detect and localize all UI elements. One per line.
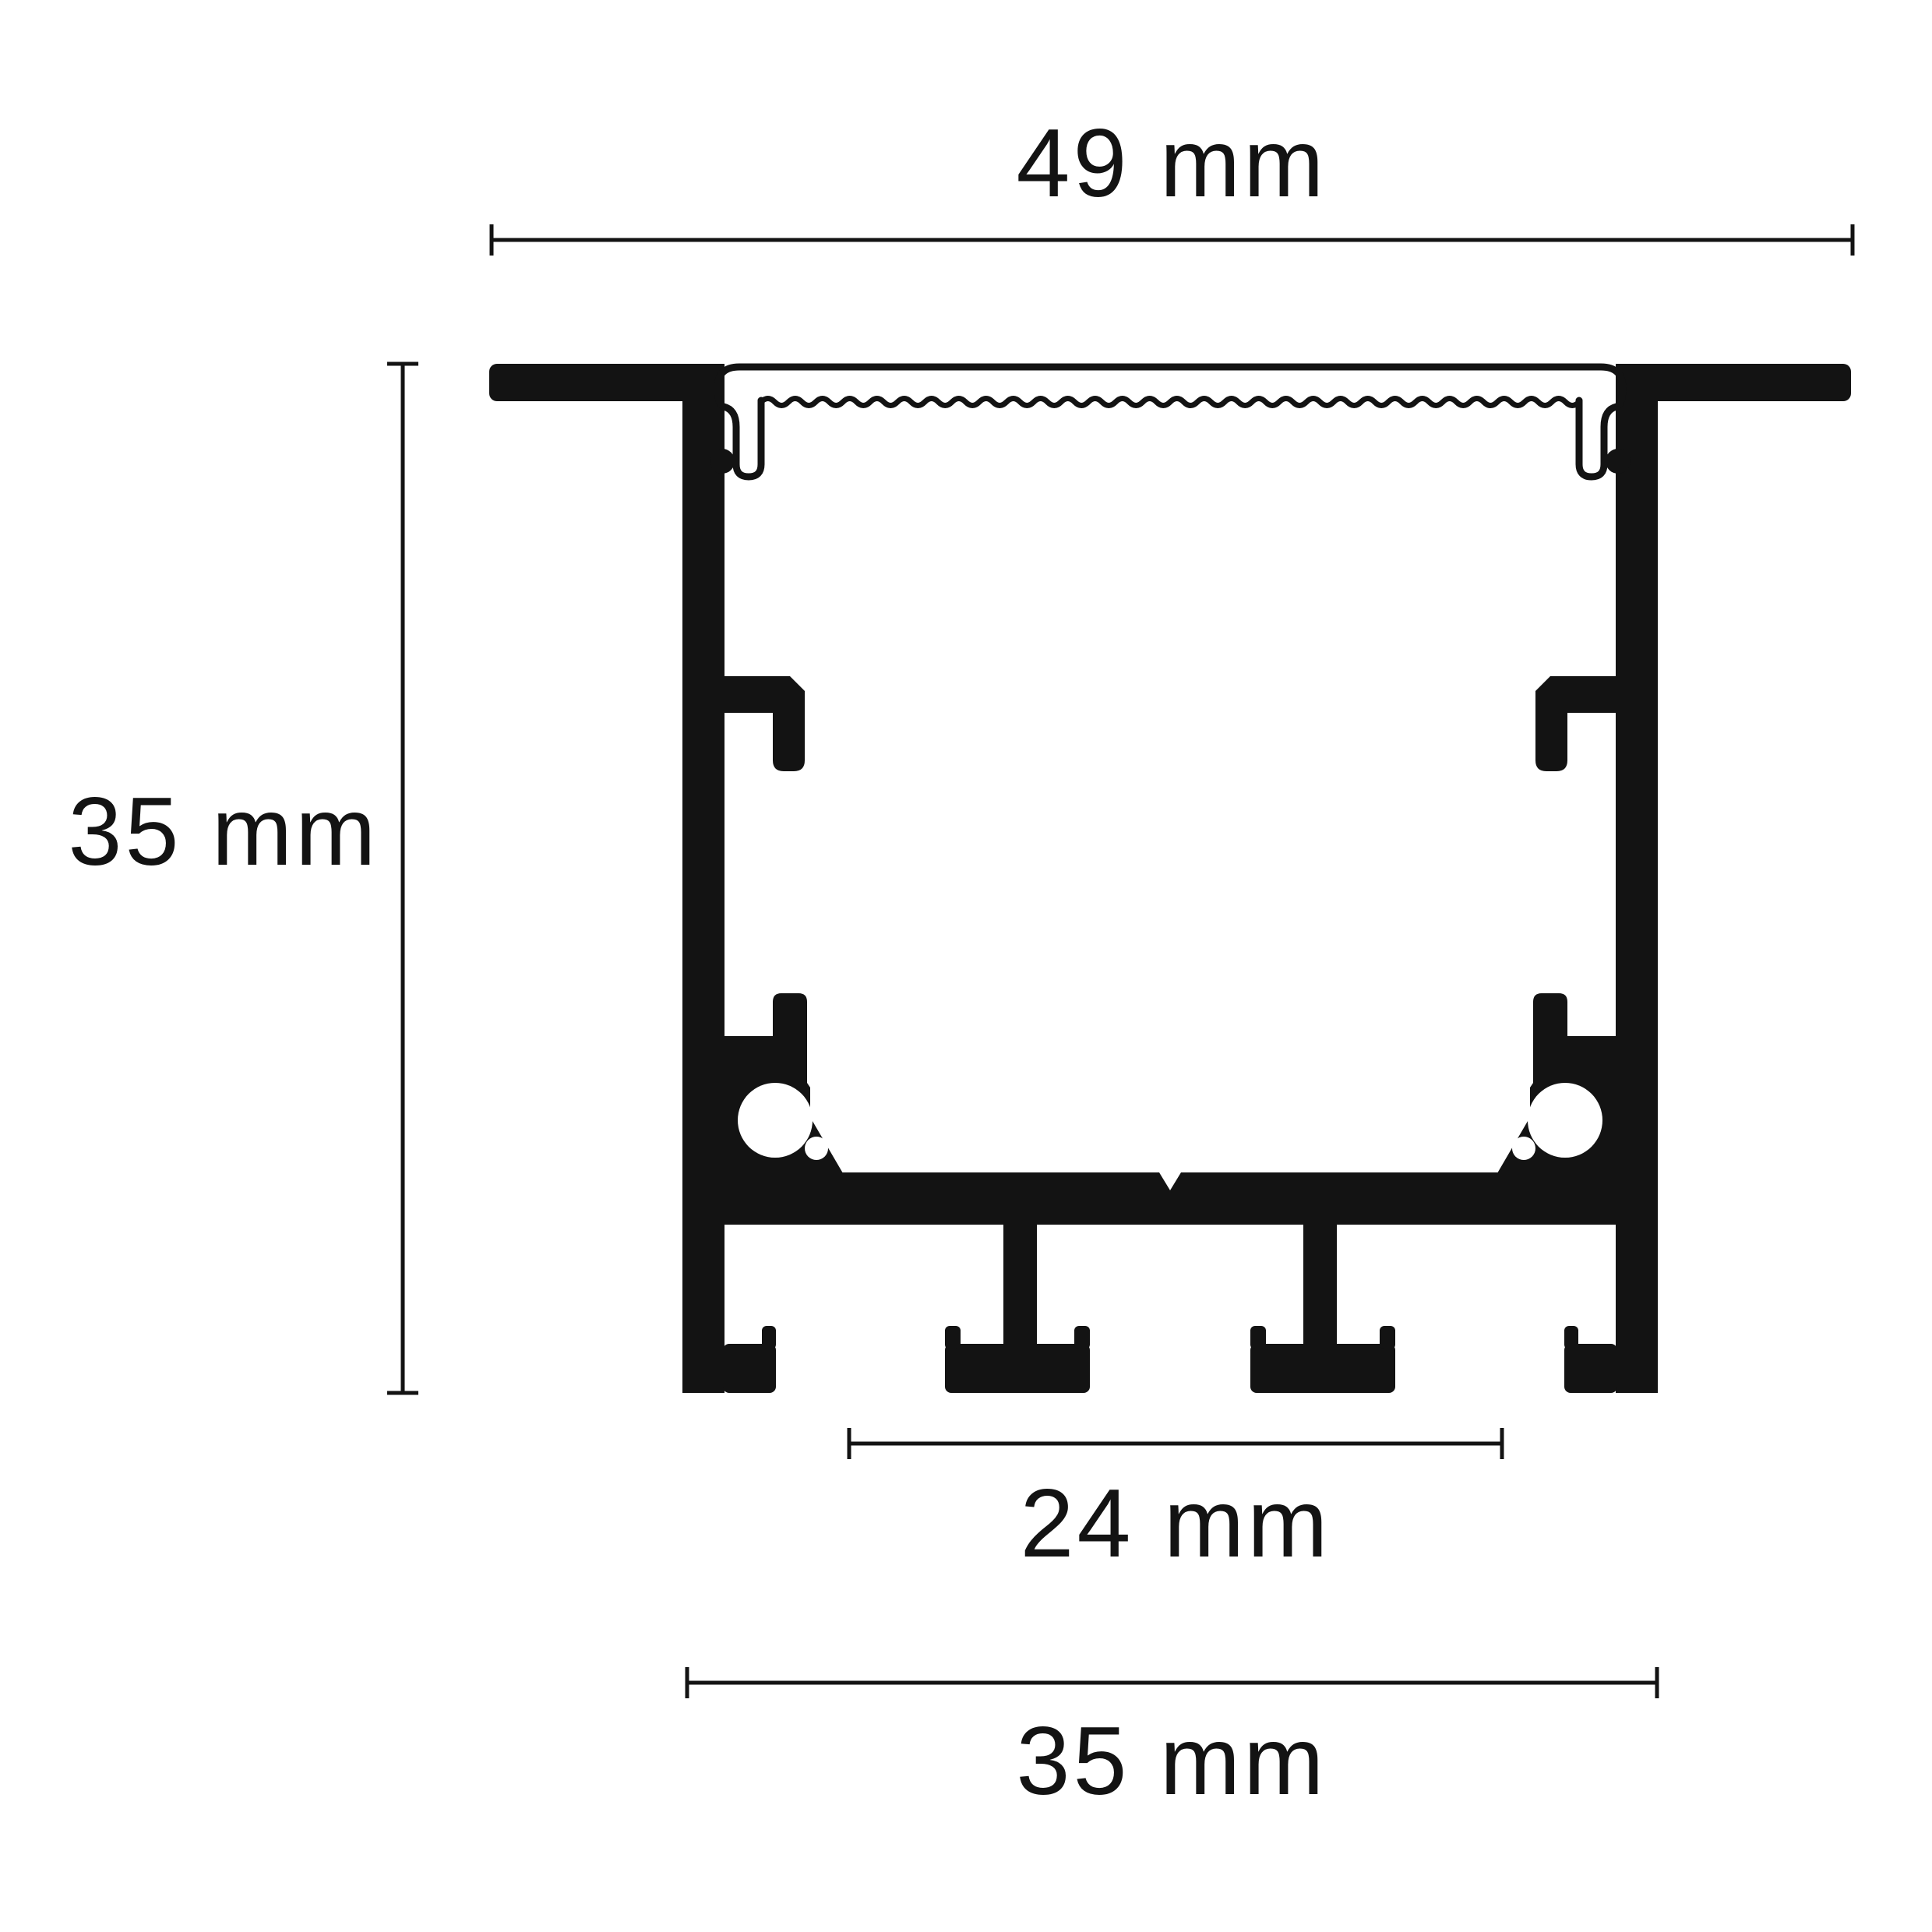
diffuser-texture-wave [761,399,1579,406]
upper-hook-right [1535,676,1616,771]
flange-left [489,364,715,401]
foot-stem-left [1003,1223,1037,1345]
side-wall-left [682,364,724,1393]
foot-serif-right-a [1250,1326,1266,1349]
screw-channel-bite-left [805,1137,828,1160]
cover-clip-bump-left [710,449,735,474]
screw-channel-bite-right [1512,1137,1535,1160]
foot-serif-right-b [1380,1326,1395,1349]
foot-crossbar-right [1250,1344,1395,1393]
side-wall-right [1616,364,1658,1393]
foot-crossbar-left [945,1344,1090,1393]
led-profile-cross-section-drawing: 49 mm 35 mm 24 mm 35 mm [0,0,1932,1932]
bottom-toe-left [723,1344,776,1393]
technical-drawing-page: 49 mm 35 mm 24 mm 35 mm [0,0,1932,1932]
bottom-toe-serif-left [762,1326,776,1349]
screw-channel-left [738,1083,813,1158]
bottom-toe-serif-right [1564,1326,1578,1349]
profile-silhouette [489,364,1851,1393]
flange-right [1625,364,1851,401]
screw-channel-right [1528,1083,1602,1158]
diffuser-outline [717,367,1623,477]
label-height: 35 mm [69,778,379,886]
bottom-toe-right [1564,1344,1617,1393]
label-led-floor-width: 24 mm [1021,1470,1331,1578]
upper-hook-left [724,676,805,771]
label-overall-width: 49 mm [1017,110,1327,217]
diffuser-cover [717,367,1623,477]
foot-stem-right [1303,1223,1337,1345]
foot-serif-left-b [1074,1326,1090,1349]
cover-clip-bump-right [1606,449,1631,474]
label-body-width: 35 mm [1017,1708,1327,1815]
foot-serif-left-a [945,1326,961,1349]
